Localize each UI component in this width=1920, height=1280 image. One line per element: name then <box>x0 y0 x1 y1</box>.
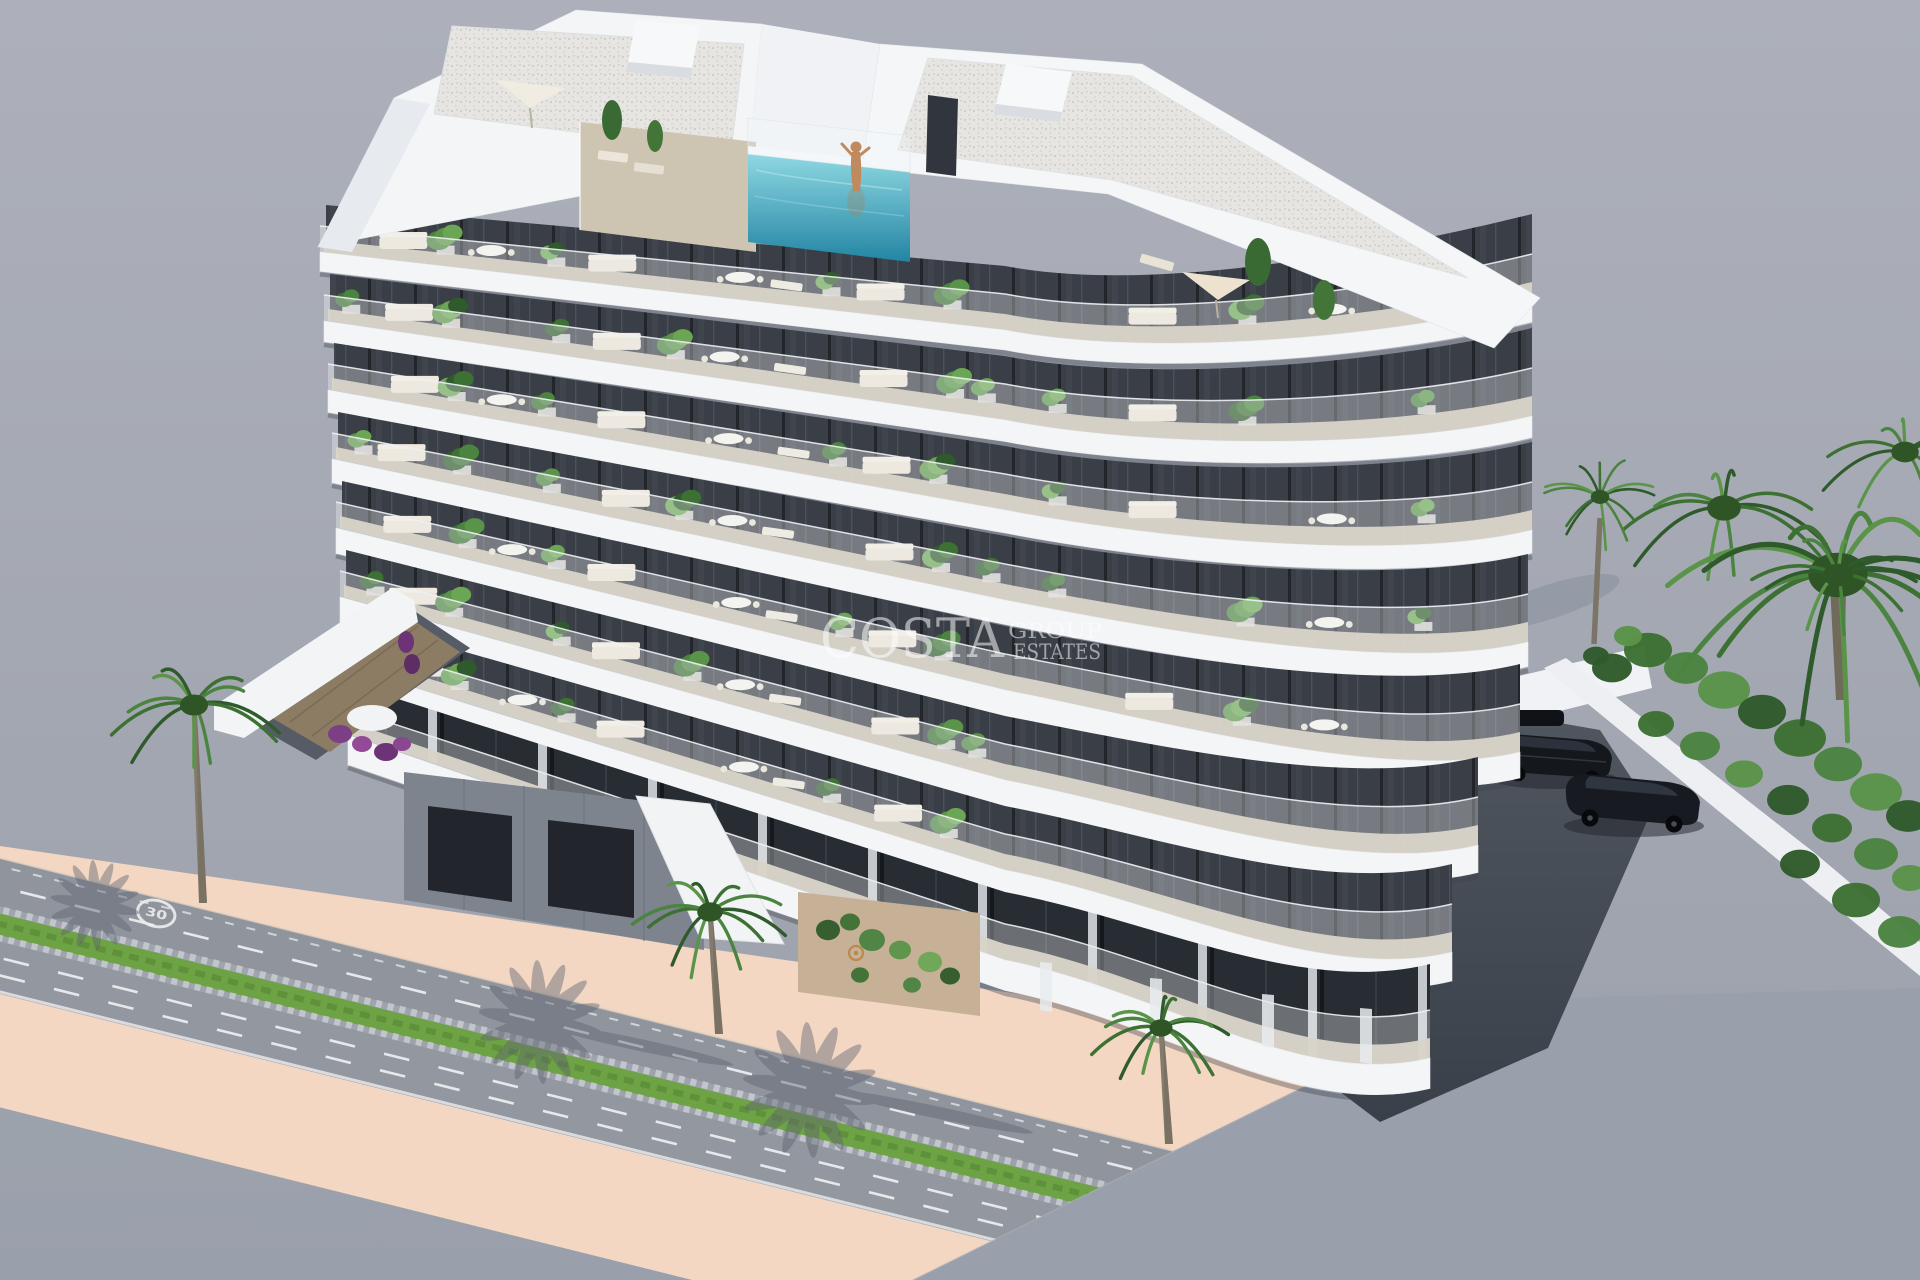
person-head <box>851 142 862 153</box>
palm-crown-core <box>1591 490 1610 504</box>
entrance-logo-dot <box>854 951 858 955</box>
garden-plant <box>840 914 860 931</box>
palm-crown-core <box>1823 564 1853 587</box>
shadow-core <box>796 1076 823 1103</box>
terrace-conifer <box>1245 238 1271 286</box>
shadow-core <box>86 896 104 914</box>
palm-crown-core <box>697 902 723 921</box>
shrub <box>1814 747 1862 782</box>
palm-crown-core <box>180 694 208 715</box>
terrace-conifer <box>1313 280 1335 320</box>
terrace-conifer <box>647 120 663 152</box>
terrace-conifer <box>602 100 622 140</box>
palm-crown-core <box>1891 442 1919 463</box>
person-reflection <box>847 187 865 217</box>
garden-plant <box>903 977 921 992</box>
shrub <box>1638 711 1674 737</box>
render-canvas: 30 <box>0 0 1920 1280</box>
garden-plant <box>851 967 869 982</box>
garden-plant <box>816 920 840 940</box>
garden-plant <box>859 929 885 951</box>
garage-door <box>548 820 634 918</box>
shrub <box>1738 695 1786 730</box>
shrub <box>1878 916 1920 948</box>
rooftop-box <box>996 64 1072 112</box>
shrub <box>1780 850 1820 879</box>
palm-crown-core <box>1707 495 1741 520</box>
shrub <box>1725 760 1763 787</box>
garden-plant <box>918 952 942 972</box>
rooftop-pool <box>748 118 910 262</box>
rooftop-box <box>628 20 700 68</box>
palm-crown-core <box>1149 1019 1172 1036</box>
shrub <box>1614 626 1642 646</box>
watermark-bottom-text: ESTATES <box>1013 640 1101 664</box>
garage-door <box>428 806 512 902</box>
shrub <box>1583 647 1609 666</box>
garden-plant <box>940 968 960 985</box>
shrub <box>1812 814 1852 843</box>
shadow-core <box>528 1010 553 1035</box>
penthouse-door <box>926 95 958 176</box>
shrub <box>1832 883 1880 918</box>
shrub <box>1854 838 1898 870</box>
pool-terrace-floor <box>580 122 756 252</box>
shrub <box>1767 785 1809 815</box>
courtyard-daybed <box>347 705 397 731</box>
watermark-main-text: COSTA <box>820 607 1005 670</box>
shrub <box>1680 732 1720 761</box>
architectural-render: 30 <box>0 0 1920 1280</box>
garden-plant <box>889 941 911 960</box>
